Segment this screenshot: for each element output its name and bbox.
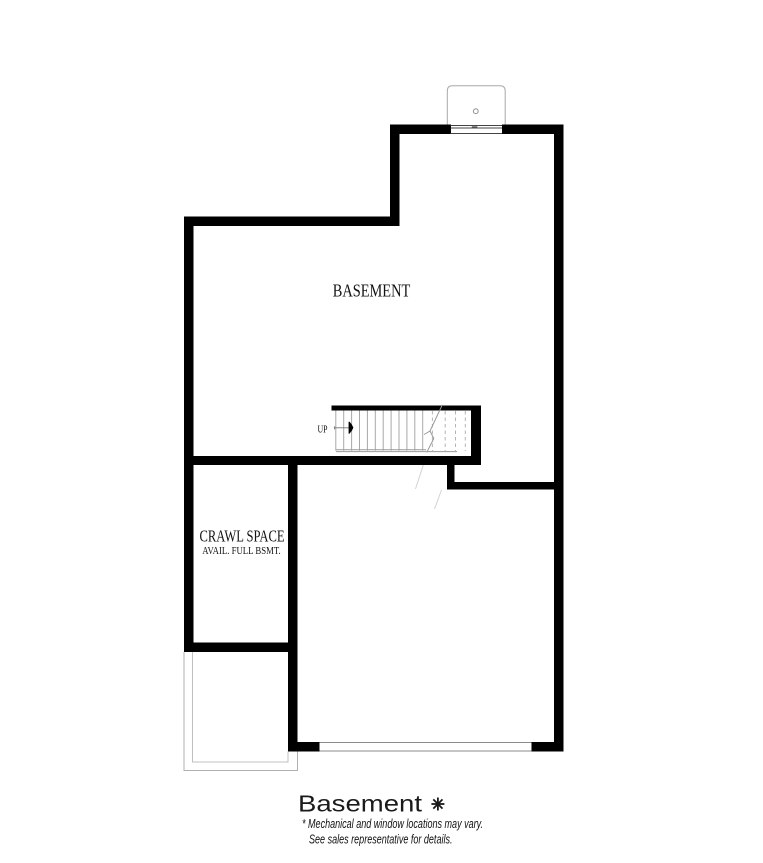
svg-text:* Mechanical and window locati: * Mechanical and window locations may va… [302,816,483,831]
svg-text:See sales representative for d: See sales representative for details. [309,831,453,846]
svg-text:Basement: Basement [298,791,423,817]
svg-text:BASEMENT: BASEMENT [333,281,411,301]
svg-text:AVAIL. FULL BSMT.: AVAIL. FULL BSMT. [202,545,281,557]
svg-text:UP: UP [318,424,328,436]
svg-text:CRAWL SPACE: CRAWL SPACE [200,527,285,546]
